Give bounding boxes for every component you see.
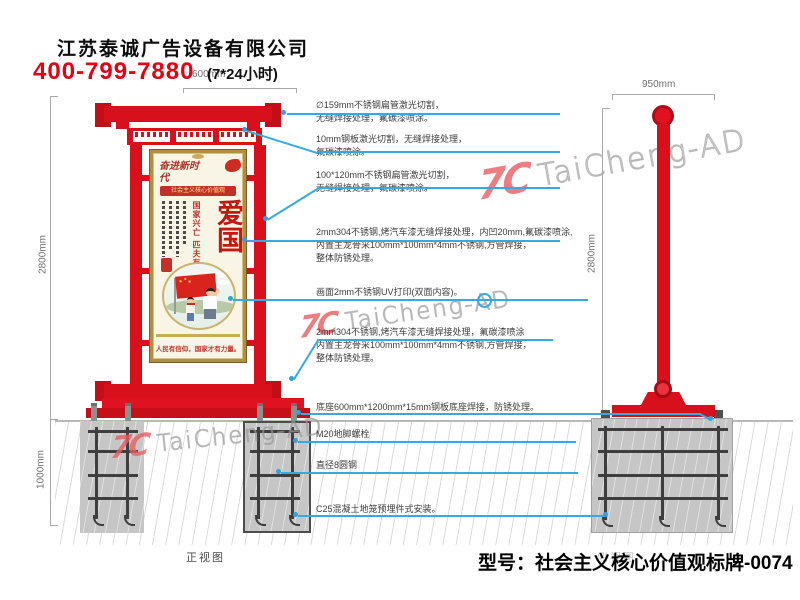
front-post-left	[130, 145, 142, 391]
fretwork-pattern	[135, 132, 168, 137]
fretwork-pattern	[221, 132, 254, 137]
side-anchor-nub	[714, 410, 723, 418]
leader-line	[281, 472, 578, 474]
dim-tick	[50, 96, 58, 97]
frame-tab	[142, 268, 150, 274]
poster-banner: 社会主义核心价值观	[160, 186, 236, 196]
annotation-line: 整体防锈处理。	[316, 252, 573, 265]
leader-line	[298, 441, 576, 443]
poster-main-word: 爱国	[209, 199, 248, 269]
dim-side-height: 2800mm	[587, 224, 598, 284]
rebar-rung	[88, 474, 138, 477]
frame-tab	[142, 175, 150, 181]
dim-line-side-top	[612, 94, 715, 95]
rebar-bar	[95, 427, 98, 519]
rebar-rung	[88, 430, 138, 433]
dim-tick	[602, 108, 610, 109]
drawing-sheet: 江苏泰诚广告设备有限公司 400-799-7880 (7*24小时) 600mm…	[0, 0, 800, 600]
rebar-rung	[250, 450, 300, 453]
annotation-line: 2mm304不锈钢,烤汽车漆无缝焊接处理，氟碳漆喷涂	[316, 326, 532, 339]
poster-panel: 奋进新时代 社会主义核心价值观 国家兴亡 匹夫有责 爱国	[150, 150, 246, 362]
leader-line	[233, 299, 588, 301]
annotation-line: ∅159mm不锈钢扁管激光切割，	[316, 99, 444, 112]
leader-line	[317, 187, 560, 189]
man-body	[203, 296, 217, 310]
bird-graphic	[225, 159, 241, 172]
poster-slogan: 人民有信仰，国家才有力量。	[153, 343, 243, 353]
frame-ornament	[192, 154, 204, 159]
annotation-9: 直径8圆钢	[316, 459, 357, 472]
lattice-window	[176, 131, 213, 142]
dim-line-left	[50, 96, 51, 526]
model-number: 型号：社会主义核心价值观标牌-0074	[478, 548, 793, 575]
lattice-window	[133, 131, 170, 142]
annotation-line: 直径8圆钢	[316, 459, 357, 472]
leader-dot	[228, 296, 233, 301]
watermark: 7C TaiCheng-AD	[474, 117, 750, 210]
leader-line	[293, 340, 318, 380]
man-pants	[204, 309, 216, 319]
phone-number: 400-799-7880	[33, 58, 194, 86]
dim-tick	[50, 419, 58, 420]
watermark-logo: 7C	[477, 154, 529, 210]
annotation-8: M20地脚螺栓	[316, 428, 370, 441]
side-pole	[657, 124, 670, 386]
rebar-rung	[598, 497, 728, 500]
leader-dot	[293, 512, 298, 517]
dim-tick	[612, 94, 613, 100]
dim-tick	[296, 88, 297, 93]
text-column	[162, 201, 165, 257]
rebar-rung	[598, 428, 728, 431]
text-column	[183, 201, 186, 245]
leader-line	[317, 151, 560, 153]
front-bottom-beam	[104, 384, 272, 398]
great-wall	[166, 300, 236, 314]
annotation-6: 2mm304不锈钢,烤汽车漆无缝焊接处理，氟碳漆喷涂 内置主龙骨采100mm*1…	[316, 326, 532, 365]
rebar-bar	[661, 426, 664, 520]
leader-line	[301, 413, 701, 415]
illustration-oval	[162, 262, 236, 330]
dim-foundation-depth: 1000mm	[36, 440, 47, 500]
annotation-line: 内置主龙骨采100mm*100mm*4mm不锈钢,方管焊接，	[316, 339, 532, 352]
annotation-5: 画面2mm不锈钢UV打印(双面内容)。	[316, 286, 463, 299]
rebar-rung	[598, 474, 728, 477]
poster-calligraphy: 奋进新时代	[159, 161, 199, 185]
frame-tab	[142, 340, 150, 346]
rebar-rung	[250, 430, 300, 433]
annotation-line: 10mm钢板激光切割，无缝焊接处理，	[316, 133, 467, 146]
leader-dot	[603, 512, 608, 517]
rebar-rung	[88, 497, 138, 500]
child-pants	[187, 313, 194, 321]
anchor-bolt	[257, 403, 263, 421]
leader-dot	[289, 376, 294, 381]
leader-dot	[708, 416, 713, 421]
rebar-bar	[257, 427, 260, 519]
rebar-rung	[250, 497, 300, 500]
front-view-label: 正视图	[186, 549, 225, 565]
dim-side-width: 950mm	[642, 79, 675, 90]
dim-line	[183, 88, 296, 89]
front-base-plate	[86, 408, 310, 418]
rebar-bar	[717, 426, 720, 520]
annotation-line: 画面2mm不锈钢UV打印(双面内容)。	[316, 286, 463, 299]
annotation-line: M20地脚螺栓	[316, 428, 370, 441]
cloud	[218, 280, 230, 285]
annotation-line: 2mm304不锈钢,烤汽车漆无缝焊接处理，内凹20mm,氟碳漆喷涂,	[316, 226, 573, 239]
leader-line	[287, 113, 560, 115]
rebar-rung	[598, 450, 728, 453]
text-column	[176, 201, 179, 257]
anchor-bolt	[91, 403, 97, 421]
annotation-1: ∅159mm不锈钢扁管激光切割， 无缝焊接处理，氟碳漆喷涂。	[316, 99, 444, 125]
leader-dot	[242, 237, 247, 242]
anchor-bolt	[125, 403, 131, 421]
annotation-3: 100*120mm不锈钢扁管激光切割， 无缝焊接处理，氟碳漆喷涂。	[316, 169, 455, 195]
dim-tick	[183, 88, 184, 93]
fretwork-pattern	[178, 132, 211, 137]
frame-divider	[156, 334, 240, 337]
leader-dot	[276, 469, 281, 474]
front-top-beam	[104, 106, 272, 122]
leader-line	[298, 515, 606, 517]
frame-tab	[246, 340, 254, 346]
company-name: 江苏泰诚广告设备有限公司	[57, 34, 309, 61]
leader-dot	[293, 438, 298, 443]
annotation-line: 100*120mm不锈钢扁管激光切割，	[316, 169, 455, 182]
leader-line	[267, 188, 318, 220]
front-post-right	[254, 145, 266, 391]
rebar-rung	[88, 450, 138, 453]
annotation-line: 无缝焊接处理，氟碳漆喷涂。	[316, 182, 455, 195]
side-pole-joint	[654, 380, 672, 398]
dim-tick	[50, 525, 58, 526]
dim-line-side-height	[602, 108, 603, 418]
seal-stamp	[161, 258, 172, 272]
dim-tick	[714, 94, 715, 100]
leader-dot	[263, 216, 268, 221]
annotation-2: 10mm钢板激光切割，无缝焊接处理， 氟碳漆喷涂。	[316, 133, 467, 159]
leader-line	[247, 240, 560, 242]
flag-stars	[179, 280, 181, 282]
frame-tab	[246, 175, 254, 181]
leader-dot	[242, 127, 247, 132]
text-column	[169, 201, 172, 251]
leader-ring	[477, 293, 492, 308]
rebar-bar	[126, 427, 129, 519]
service-hours: (7*24小时)	[207, 63, 278, 84]
leader-line	[317, 339, 553, 341]
annotation-line: 整体防锈处理。	[316, 352, 532, 365]
annotation-4: 2mm304不锈钢,烤汽车漆无缝焊接处理，内凹20mm,氟碳漆喷涂, 内置主龙骨…	[316, 226, 573, 265]
annotation-line: 氟碳漆喷涂。	[316, 146, 467, 159]
rebar-bar	[604, 426, 607, 520]
leader-dot	[296, 410, 301, 415]
dim-front-height: 2800mm	[38, 225, 49, 285]
side-base-plate	[612, 405, 715, 417]
watermark-text: TaiCheng-AD	[535, 122, 749, 193]
rebar-rung	[250, 474, 300, 477]
leader-dot	[281, 110, 286, 115]
front-pedestal	[102, 398, 304, 408]
